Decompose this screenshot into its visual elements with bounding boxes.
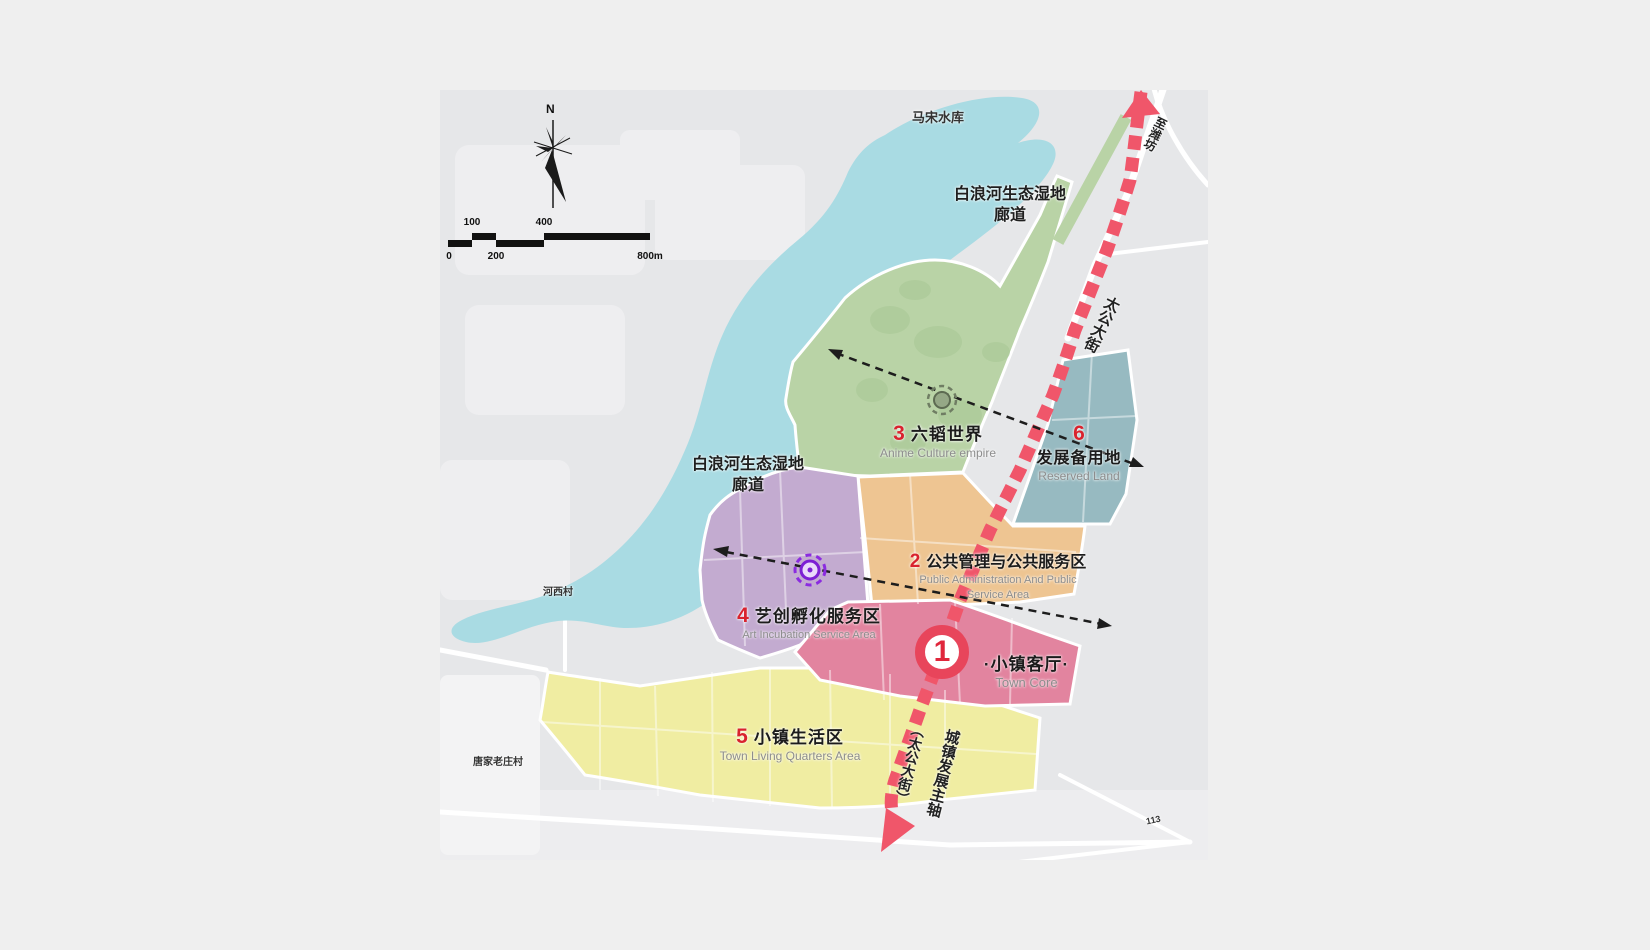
zone5-number: 5 — [736, 727, 748, 747]
scale-label-400: 400 — [524, 217, 564, 228]
scale-label-100: 100 — [452, 217, 492, 228]
zone6-number: 6 — [999, 424, 1159, 444]
zone3-number: 3 — [893, 424, 905, 444]
zone2-title: 公共管理与公共服务区 — [926, 548, 1086, 572]
planning-map-page: N 100 400 0 200 800m 马宋水库 白浪河生态湿地 廊道 白浪河… — [0, 0, 1650, 950]
scale-label-0: 0 — [440, 251, 469, 262]
scale-label-200: 200 — [476, 251, 516, 262]
zone1-subtitle: Town Core — [954, 675, 1099, 690]
scale-label-800m: 800m — [630, 251, 670, 262]
compass-north-label: N — [546, 102, 555, 116]
zone6-subtitle: Reserved Land — [999, 469, 1159, 483]
zone6-title: 发展备用地 — [999, 444, 1159, 468]
zone4-title: 艺创孵化服务区 — [755, 602, 881, 627]
master-plan-map: N 100 400 0 200 800m 马宋水库 白浪河生态湿地 廊道 白浪河… — [440, 90, 1208, 860]
wetland-top-line2: 廊道 — [930, 205, 1090, 226]
wetland-top-line1: 白浪河生态湿地 — [930, 184, 1090, 205]
zone1-label: ·小镇客厅· Town Core — [954, 650, 1099, 690]
zone5-subtitle: Town Living Quarters Area — [690, 749, 890, 763]
purple-node-marker — [795, 555, 825, 585]
zone5-label: 5 小镇生活区 Town Living Quarters Area — [690, 723, 890, 763]
reservoir-label: 马宋水库 — [898, 107, 978, 126]
zone4-number: 4 — [737, 606, 749, 626]
zone5-title: 小镇生活区 — [754, 723, 844, 748]
wetland-corridor-label-top: 白浪河生态湿地 廊道 — [930, 184, 1090, 226]
village-hexi-label: 河西村 — [528, 583, 588, 598]
zone3-title: 六韬世界 — [911, 420, 983, 445]
village-tangjia-label: 唐家老庄村 — [456, 753, 540, 768]
zone2-number: 2 — [910, 552, 921, 572]
zone2-label: 2 公共管理与公共服务区 Public Administration And P… — [883, 548, 1113, 602]
wetland-corridor-label-left: 白浪河生态湿地 廊道 — [668, 454, 828, 496]
zone4-label: 4 艺创孵化服务区 Art Incubation Service Area — [699, 602, 919, 642]
zone4-subtitle: Art Incubation Service Area — [699, 628, 919, 642]
zone1-circle-number: 1 — [924, 633, 960, 671]
zone1-title: ·小镇客厅· — [954, 650, 1099, 675]
wetland-left-line1: 白浪河生态湿地 — [668, 454, 828, 475]
zone6-label: 6 发展备用地 Reserved Land — [999, 424, 1159, 483]
wetland-left-line2: 廊道 — [668, 475, 828, 496]
zone2-subtitle-line2: Service Area — [883, 588, 1113, 602]
zone2-subtitle-line1: Public Administration And Public — [883, 573, 1113, 587]
